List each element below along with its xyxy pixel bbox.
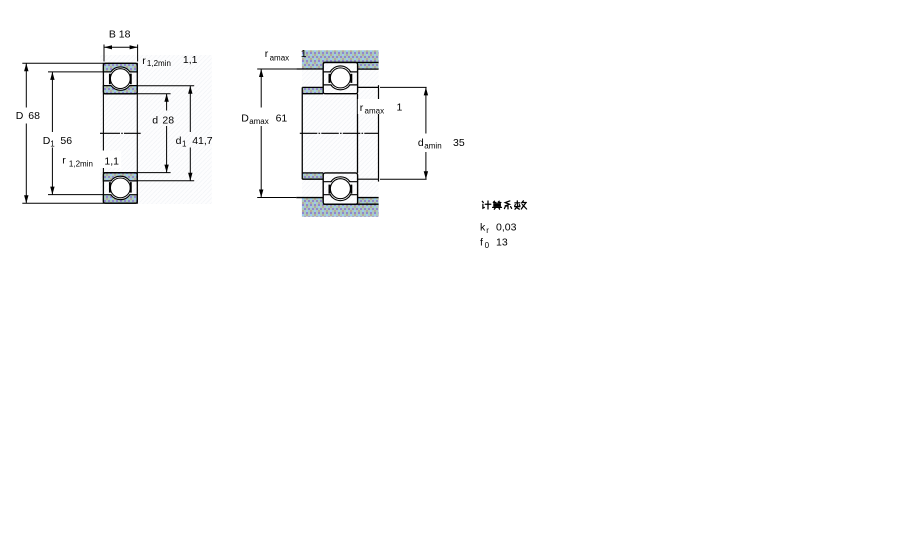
svg-text:r: r	[486, 226, 489, 235]
svg-text:amax: amax	[270, 53, 290, 62]
svg-text:41,7: 41,7	[192, 135, 213, 147]
svg-text:1: 1	[397, 102, 403, 114]
svg-text:1: 1	[182, 140, 187, 149]
svg-text:D: D	[16, 110, 24, 122]
svg-text:18: 18	[119, 28, 131, 40]
svg-text:56: 56	[60, 135, 72, 147]
svg-text:f: f	[480, 237, 483, 249]
svg-text:1,2min: 1,2min	[69, 159, 93, 168]
svg-text:d: d	[176, 135, 182, 147]
svg-text:r: r	[360, 102, 364, 114]
svg-text:d: d	[152, 114, 158, 126]
svg-text:28: 28	[162, 114, 174, 126]
svg-text:1: 1	[301, 48, 307, 60]
svg-text:68: 68	[28, 110, 40, 122]
svg-text:35: 35	[453, 137, 465, 149]
svg-text:r: r	[265, 48, 269, 60]
svg-text:61: 61	[276, 112, 288, 124]
svg-text:d: d	[418, 137, 424, 149]
svg-text:13: 13	[496, 237, 508, 249]
svg-text:D: D	[241, 112, 249, 124]
svg-text:B: B	[109, 28, 116, 40]
svg-text:1,2min: 1,2min	[147, 59, 171, 68]
svg-text:k: k	[480, 221, 486, 233]
svg-text:amax: amax	[365, 107, 385, 116]
svg-text:r: r	[62, 155, 66, 167]
svg-text:amax: amax	[249, 117, 269, 126]
svg-text:0: 0	[485, 241, 490, 250]
svg-text:1: 1	[50, 140, 55, 149]
svg-text:1,1: 1,1	[104, 155, 119, 167]
svg-text:0,03: 0,03	[496, 221, 517, 233]
svg-text:r: r	[142, 55, 146, 67]
svg-text:1,1: 1,1	[183, 54, 198, 66]
svg-text:amin: amin	[424, 142, 441, 151]
